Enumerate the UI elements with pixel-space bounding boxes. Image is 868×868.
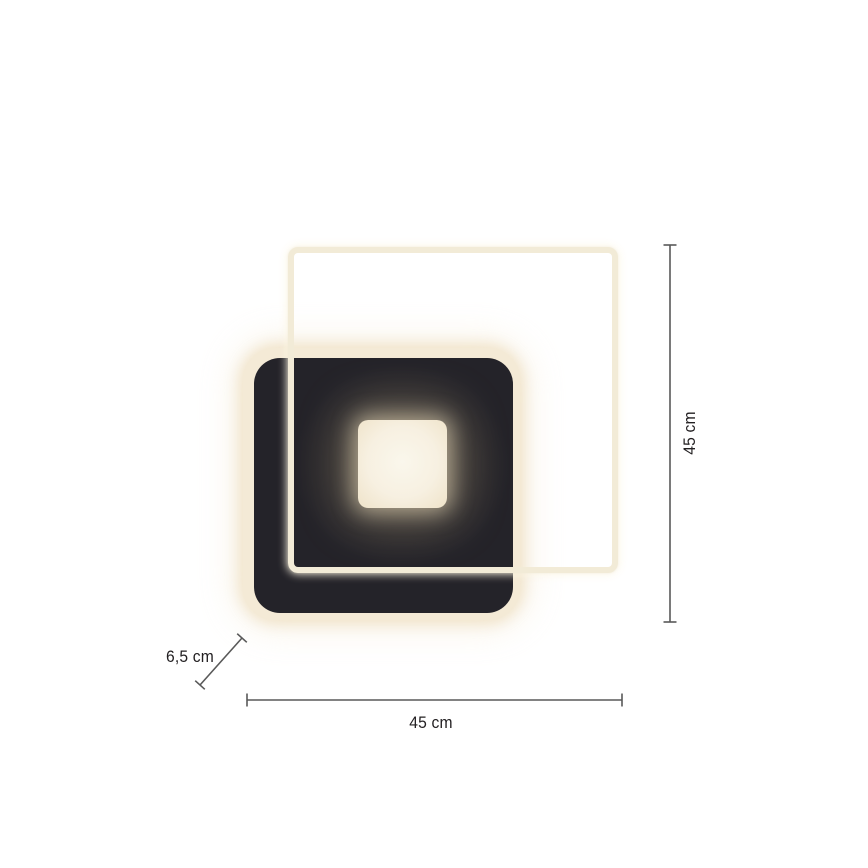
width-dimension-line — [247, 694, 622, 707]
height-dimension-label: 45 cm — [680, 411, 700, 455]
dimension-lines — [0, 0, 868, 868]
product-dimension-diagram: 45 cm 45 cm 6,5 cm — [0, 0, 868, 868]
height-dimension-line — [664, 245, 677, 622]
width-dimension-label: 45 cm — [409, 713, 453, 733]
depth-dimension-label: 6,5 cm — [166, 647, 214, 667]
